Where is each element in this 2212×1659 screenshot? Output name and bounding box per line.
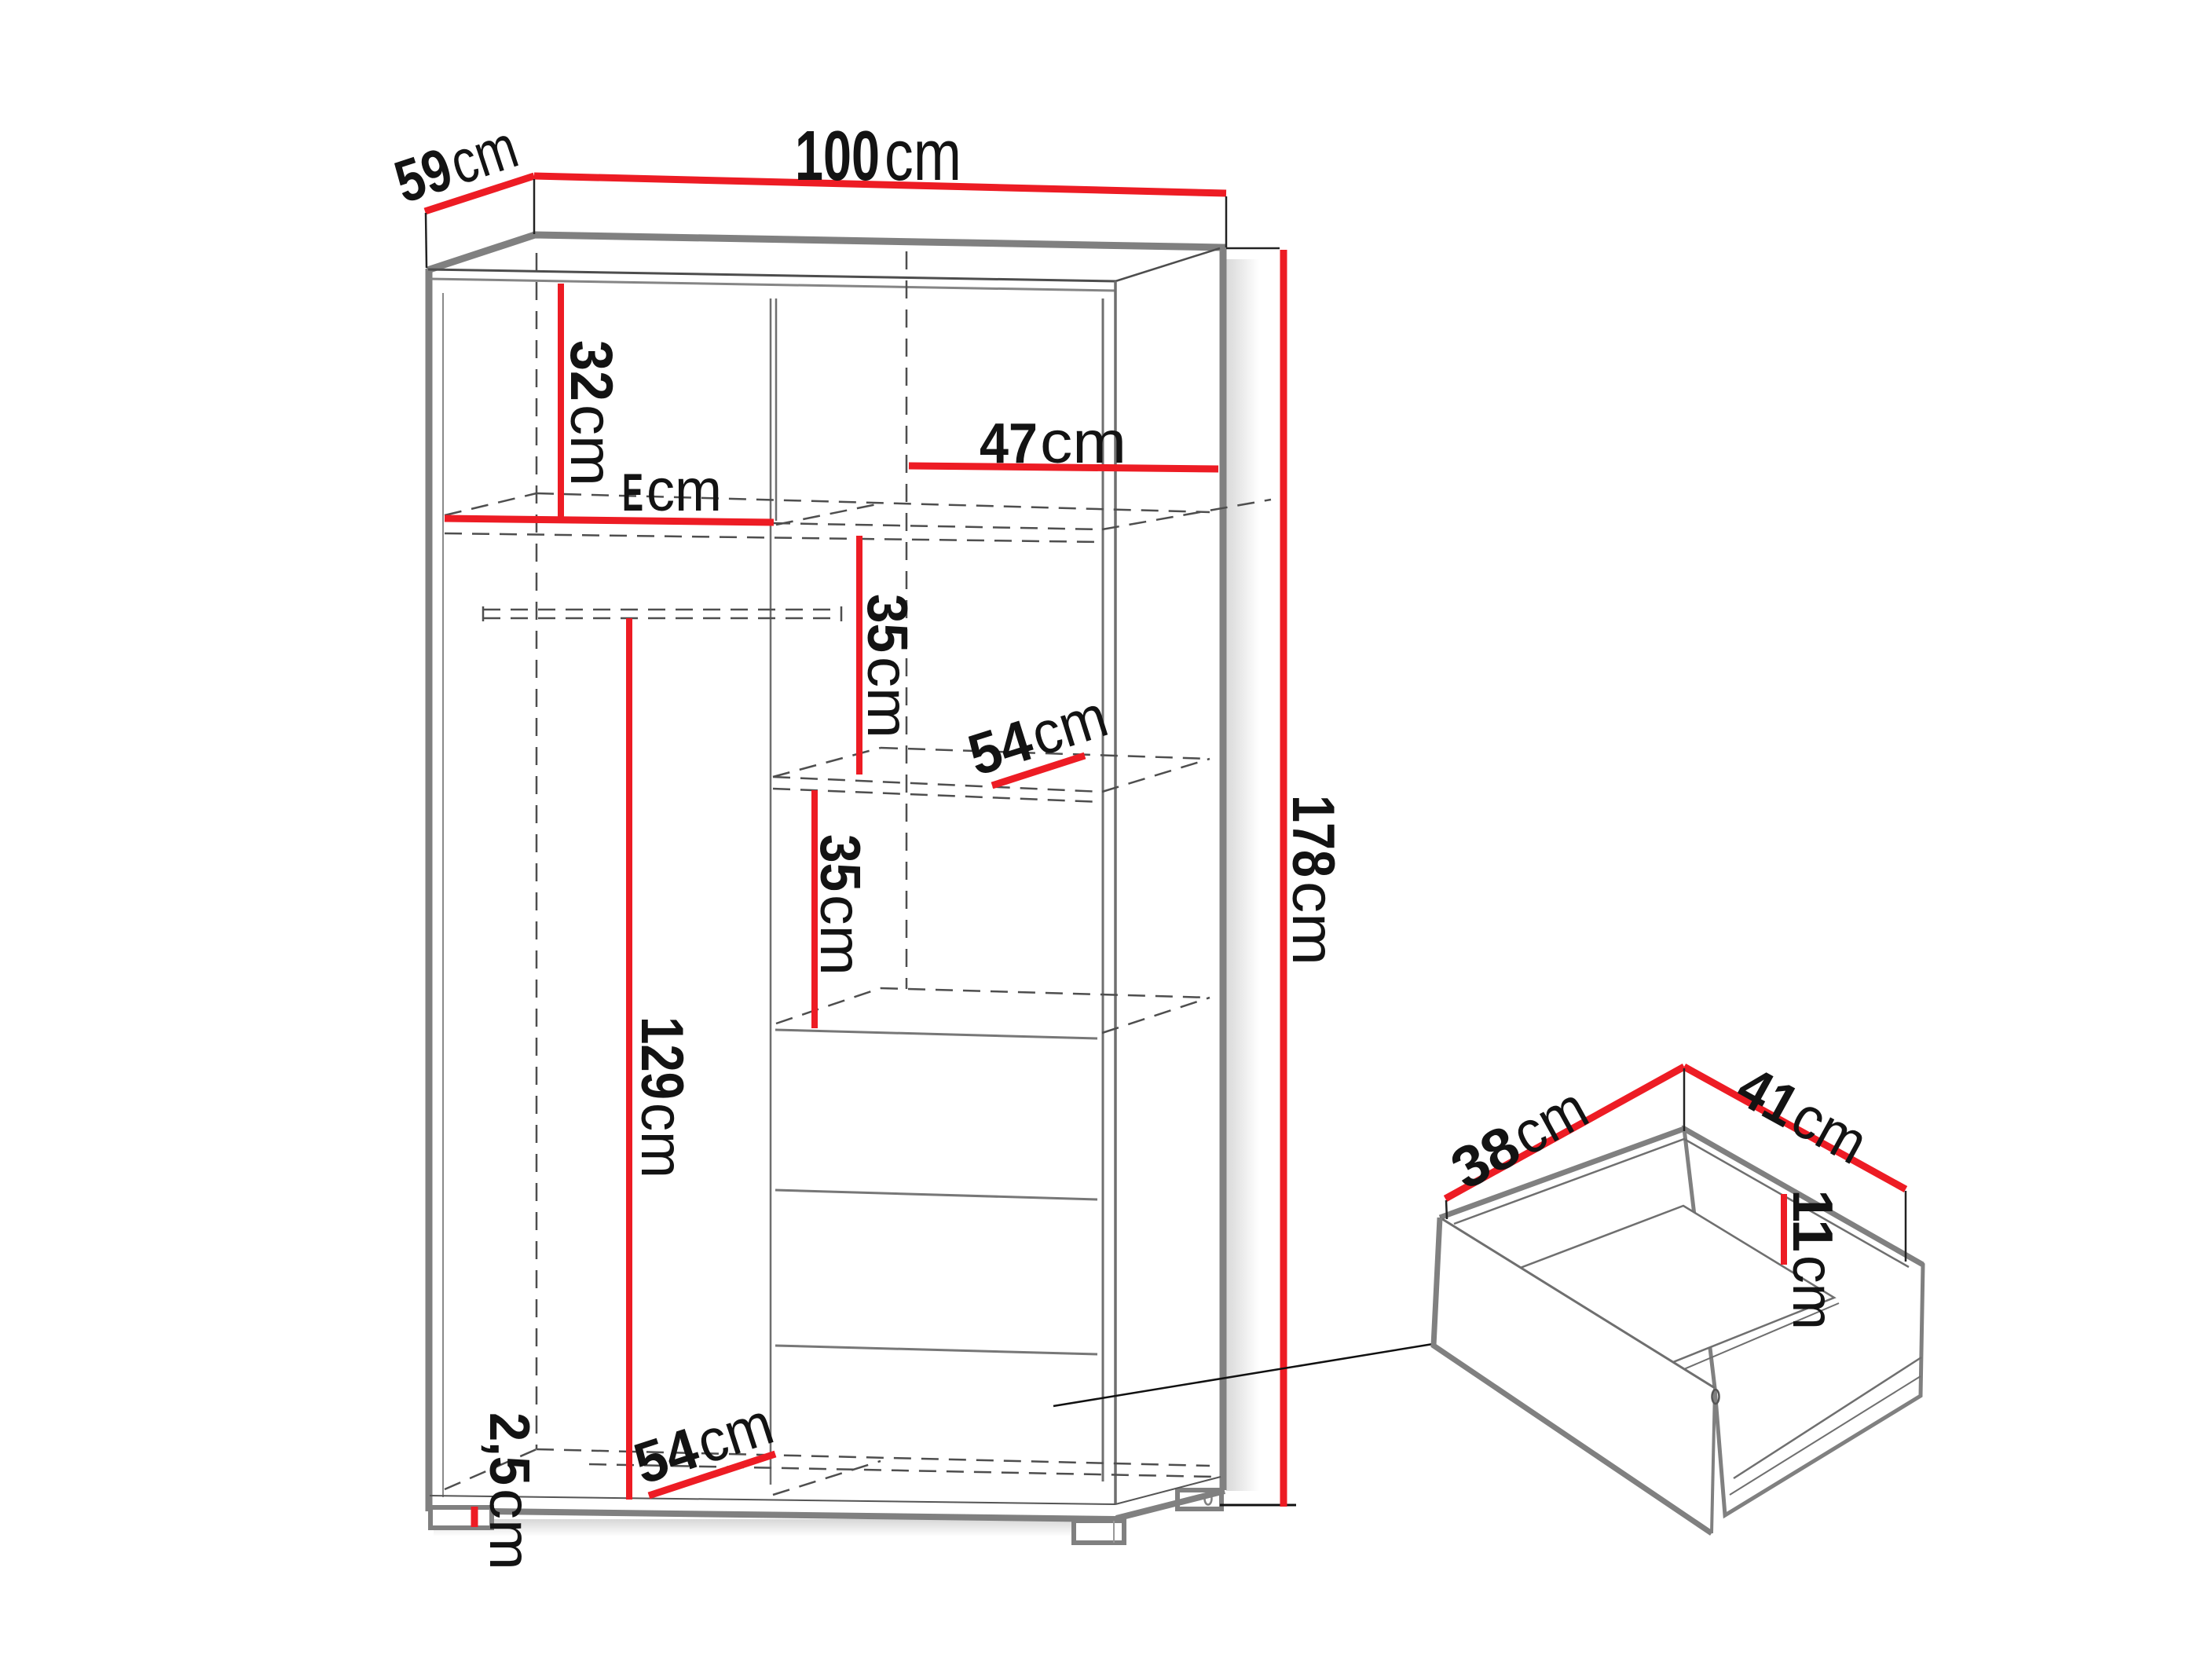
svg-text:32: 32	[558, 340, 624, 401]
svg-text:cm: cm	[808, 895, 873, 976]
svg-text:100: 100	[795, 117, 880, 196]
svg-text:cm: cm	[628, 1103, 695, 1178]
svg-text:cm: cm	[646, 457, 722, 524]
svg-text:cm: cm	[1280, 881, 1346, 965]
svg-text:cm: cm	[1040, 409, 1126, 476]
svg-text:cm: cm	[1781, 1255, 1846, 1330]
svg-text:2,5: 2,5	[478, 1412, 540, 1485]
svg-text:11: 11	[1781, 1189, 1844, 1252]
svg-text:47: 47	[980, 412, 1038, 475]
svg-text:cm: cm	[558, 405, 624, 486]
svg-text:cm: cm	[478, 1489, 543, 1570]
svg-text:cm: cm	[855, 657, 921, 738]
svg-text:129: 129	[628, 1016, 695, 1100]
svg-text:35: 35	[855, 594, 918, 653]
svg-text:E: E	[622, 463, 643, 522]
svg-text:178: 178	[1280, 795, 1346, 877]
svg-text:35: 35	[808, 834, 871, 892]
svg-text:cm: cm	[884, 115, 961, 196]
